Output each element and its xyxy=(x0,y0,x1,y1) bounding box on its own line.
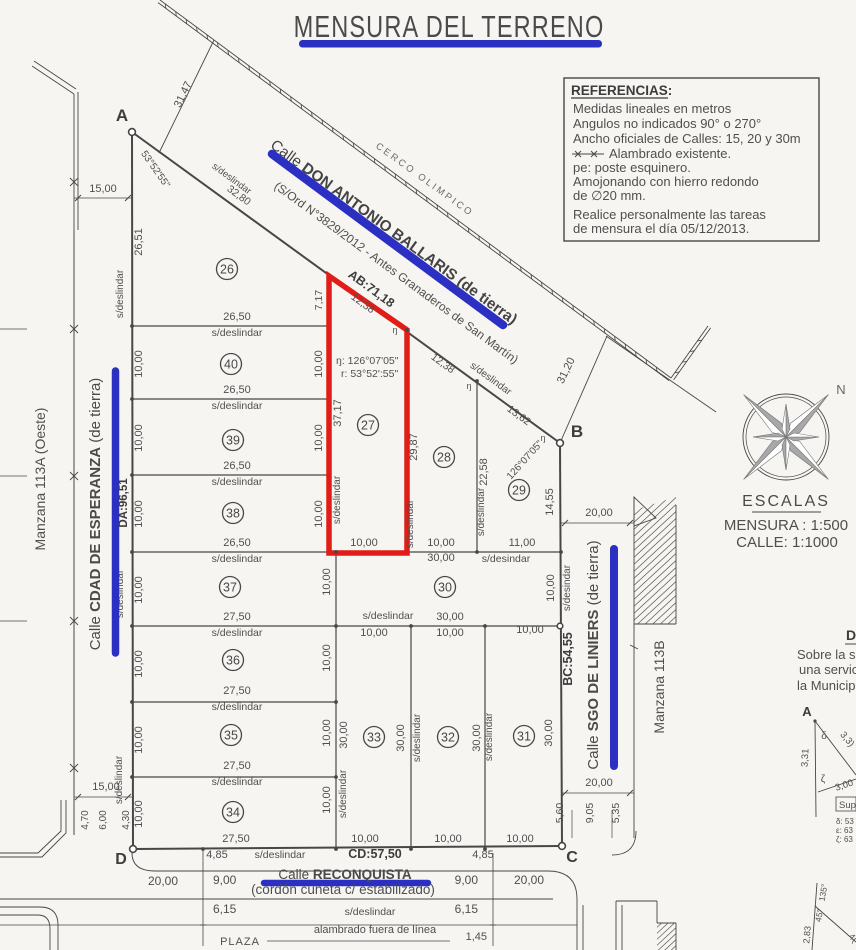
svg-text:20,00: 20,00 xyxy=(148,874,178,888)
svg-text:10,00: 10,00 xyxy=(133,500,145,528)
svg-text:10,00: 10,00 xyxy=(506,833,534,845)
svg-text:s/deslindar: s/deslindar xyxy=(255,849,306,861)
svg-text:s/desindar: s/desindar xyxy=(562,564,573,611)
svg-text:δ: 53: δ: 53 xyxy=(836,817,854,826)
svg-text:s/deslindar: s/deslindar xyxy=(212,327,263,339)
svg-text:29,87: 29,87 xyxy=(408,433,420,461)
svg-text:37,17: 37,17 xyxy=(332,399,344,427)
svg-text:27,50: 27,50 xyxy=(223,685,251,697)
svg-text:de mensura el día 05/12/2013.: de mensura el día 05/12/2013. xyxy=(573,221,749,236)
svg-text:CALLE: 1:1000: CALLE: 1:1000 xyxy=(736,534,838,551)
svg-text:10,00: 10,00 xyxy=(360,627,388,639)
svg-text:26,50: 26,50 xyxy=(223,537,251,549)
svg-text:Angulos no indicados 90° o 270: Angulos no indicados 90° o 270° xyxy=(573,116,761,131)
svg-text:s/deslindar: s/deslindar xyxy=(412,713,423,762)
svg-text:26: 26 xyxy=(220,262,234,276)
svg-text:Alambrado existente.: Alambrado existente. xyxy=(609,146,731,161)
svg-text:27: 27 xyxy=(361,418,375,432)
svg-text:33: 33 xyxy=(367,730,381,744)
svg-text:10,00: 10,00 xyxy=(436,627,464,639)
svg-text:5,60: 5,60 xyxy=(554,803,566,824)
svg-text:N: N xyxy=(836,382,845,397)
svg-text:s/deslindar: s/deslindar xyxy=(212,776,263,788)
svg-text:20,00: 20,00 xyxy=(585,777,613,789)
svg-text:D: D xyxy=(115,851,127,868)
svg-text:Sobre la s: Sobre la s xyxy=(797,647,856,662)
svg-text:30,00: 30,00 xyxy=(395,724,407,752)
svg-text:37: 37 xyxy=(223,580,237,594)
svg-text:Amojonando con hierro redondo: Amojonando con hierro redondo xyxy=(573,174,759,189)
svg-text:10,00: 10,00 xyxy=(133,800,145,828)
svg-text:REFERENCIAS:: REFERENCIAS: xyxy=(571,83,672,98)
svg-text:s/deslindar: s/deslindar xyxy=(212,627,263,639)
svg-text:s/deslindar: s/deslindar xyxy=(115,269,126,318)
svg-text:34: 34 xyxy=(226,805,240,819)
svg-text:27,50: 27,50 xyxy=(222,833,250,845)
svg-text:14,55: 14,55 xyxy=(544,488,556,516)
svg-text:10,00: 10,00 xyxy=(133,650,145,678)
svg-text:r: 53°52':55": r: 53°52':55" xyxy=(341,368,398,380)
svg-text:4,85: 4,85 xyxy=(206,849,227,861)
svg-text:20,00: 20,00 xyxy=(585,507,613,519)
svg-text:30: 30 xyxy=(438,580,452,594)
svg-text:ŋ: ŋ xyxy=(540,433,545,443)
svg-text:D: D xyxy=(846,627,856,643)
svg-text:30,00: 30,00 xyxy=(338,721,350,749)
svg-text:pe: poste esquinero.: pe: poste esquinero. xyxy=(573,160,691,175)
svg-text:30,00: 30,00 xyxy=(543,719,555,747)
svg-text:C: C xyxy=(566,849,578,866)
svg-text:Realice personalmente las tare: Realice personalmente las tareas xyxy=(573,207,766,222)
svg-text:26,50: 26,50 xyxy=(223,460,251,472)
svg-text:6,15: 6,15 xyxy=(455,902,479,916)
svg-text:ŋ: ŋ xyxy=(392,325,397,335)
svg-text:(cordón cuneta c/ estabilizado: (cordón cuneta c/ estabilizado) xyxy=(251,882,435,897)
svg-text:s/desindar: s/desindar xyxy=(482,553,531,565)
svg-text:s/deslindar: s/deslindar xyxy=(405,499,416,548)
svg-text:s/deslindar: s/deslindar xyxy=(212,553,263,565)
svg-text:alambrado fuera de línea: alambrado fuera de línea xyxy=(314,924,437,936)
svg-text:BC:54,55: BC:54,55 xyxy=(561,632,575,686)
svg-text:10,00: 10,00 xyxy=(351,833,379,845)
svg-text:MENSURA DEL TERRENO: MENSURA DEL TERRENO xyxy=(294,9,605,44)
svg-text:CD:57,50: CD:57,50 xyxy=(348,847,402,861)
svg-text:A: A xyxy=(116,106,128,125)
svg-text:32: 32 xyxy=(441,730,455,744)
svg-text:10,00: 10,00 xyxy=(313,424,325,452)
svg-text:10,00: 10,00 xyxy=(321,719,333,747)
svg-text:26,51: 26,51 xyxy=(133,228,145,256)
svg-text:4,85: 4,85 xyxy=(472,849,493,861)
svg-text:Calle CDAD DE ESPERANZA (de ti: Calle CDAD DE ESPERANZA (de tierra) xyxy=(87,378,104,651)
svg-text:s/deslindar: s/deslindar xyxy=(345,906,396,918)
svg-text:s/deslindar: s/deslindar xyxy=(338,769,349,818)
svg-text:s/deslindar: s/deslindar xyxy=(484,712,495,761)
svg-text:ŋ: ŋ xyxy=(466,381,471,391)
svg-text:s/deslindar: s/deslindar xyxy=(332,475,343,524)
svg-text:Ancho oficiales de Calles: 15,: Ancho oficiales de Calles: 15, 20 y 30m xyxy=(573,131,801,146)
svg-text:10,00: 10,00 xyxy=(321,786,333,814)
svg-text:10,00: 10,00 xyxy=(133,350,145,378)
svg-text:Sup: Sup xyxy=(839,800,856,811)
svg-text:40: 40 xyxy=(224,357,238,371)
svg-text:Manzana 113B: Manzana 113B xyxy=(651,640,667,733)
svg-text:10,00: 10,00 xyxy=(321,568,333,596)
svg-text:15,00: 15,00 xyxy=(92,781,120,793)
svg-text:Calle SGO DE LINIERS (de tierr: Calle SGO DE LINIERS (de tierra) xyxy=(585,540,602,769)
svg-text:10,00: 10,00 xyxy=(321,644,333,672)
svg-text:11,00: 11,00 xyxy=(509,537,536,549)
svg-text:7,17: 7,17 xyxy=(313,290,325,311)
svg-text:1,45: 1,45 xyxy=(466,931,487,943)
svg-text:s/deslindar: s/deslindar xyxy=(212,400,263,412)
svg-text:6,15: 6,15 xyxy=(213,902,237,916)
svg-text:10,00: 10,00 xyxy=(350,537,378,549)
svg-text:20,00: 20,00 xyxy=(514,873,544,887)
svg-text:22,58: 22,58 xyxy=(478,458,490,486)
svg-text:10,00: 10,00 xyxy=(313,500,325,528)
svg-text:δ: δ xyxy=(821,731,827,742)
svg-text:ζ: 63: ζ: 63 xyxy=(836,835,853,844)
svg-text:A: A xyxy=(802,704,812,719)
svg-text:s/deslindar: s/deslindar xyxy=(476,487,487,536)
svg-text:10,00: 10,00 xyxy=(133,726,145,754)
svg-text:Medidas lineales en metros: Medidas lineales en metros xyxy=(573,101,732,116)
svg-text:10,00: 10,00 xyxy=(313,350,325,378)
svg-text:s/deslindar: s/deslindar xyxy=(212,701,263,713)
svg-text:36: 36 xyxy=(226,653,240,667)
svg-text:29: 29 xyxy=(512,483,526,497)
svg-text:10,00: 10,00 xyxy=(545,574,557,602)
svg-text:10,00: 10,00 xyxy=(133,424,145,452)
svg-text:30,00: 30,00 xyxy=(436,611,464,623)
svg-text:35: 35 xyxy=(224,728,238,742)
svg-text:10,00: 10,00 xyxy=(434,833,462,845)
svg-text:4,30: 4,30 xyxy=(121,810,132,830)
svg-text:Calle RECONQUISTA: Calle RECONQUISTA xyxy=(278,867,412,882)
svg-text:27,50: 27,50 xyxy=(223,760,251,772)
svg-text:una servic: una servic xyxy=(799,662,856,677)
svg-text:26,50: 26,50 xyxy=(223,311,251,323)
svg-text:10,00: 10,00 xyxy=(427,537,455,549)
svg-text:31: 31 xyxy=(517,729,531,743)
svg-text:39: 39 xyxy=(226,433,240,447)
svg-text:9,00: 9,00 xyxy=(213,873,237,887)
svg-text:10,00: 10,00 xyxy=(516,624,544,636)
svg-text:de ∅20 mm.: de ∅20 mm. xyxy=(573,188,646,203)
svg-text:38: 38 xyxy=(226,506,240,520)
svg-text:9,05: 9,05 xyxy=(584,803,596,824)
svg-text:3,31: 3,31 xyxy=(800,748,812,767)
svg-text:la Municip: la Municip xyxy=(797,678,856,693)
svg-text:DA:96,51: DA:96,51 xyxy=(118,478,130,528)
svg-text:30,00: 30,00 xyxy=(427,552,455,564)
svg-text:15,00: 15,00 xyxy=(89,183,117,195)
svg-text:s/deslindar: s/deslindar xyxy=(363,610,414,622)
svg-text:s/deslindar: s/deslindar xyxy=(212,476,263,488)
svg-text:9,00: 9,00 xyxy=(455,873,479,887)
svg-text:ESCALAS: ESCALAS xyxy=(742,493,830,510)
svg-text:2,83: 2,83 xyxy=(801,926,812,944)
svg-text:ζ: ζ xyxy=(821,774,826,785)
svg-text:ŋ: 126°07'05": ŋ: 126°07'05" xyxy=(336,355,399,367)
svg-text:ε: 63: ε: 63 xyxy=(836,826,853,835)
svg-text:MENSURA : 1:500: MENSURA : 1:500 xyxy=(724,517,848,534)
svg-text:28: 28 xyxy=(437,450,451,464)
svg-text:26,50: 26,50 xyxy=(223,384,251,396)
svg-text:Manzana 113A (Oeste): Manzana 113A (Oeste) xyxy=(32,408,48,551)
svg-text:4,70: 4,70 xyxy=(80,810,91,830)
svg-text:B: B xyxy=(571,422,583,441)
svg-text:27,50: 27,50 xyxy=(223,611,251,623)
svg-text:6,00: 6,00 xyxy=(98,810,109,830)
svg-text:30,00: 30,00 xyxy=(471,724,483,752)
svg-text:10,00: 10,00 xyxy=(133,576,145,604)
svg-text:PLAZA: PLAZA xyxy=(220,936,260,948)
